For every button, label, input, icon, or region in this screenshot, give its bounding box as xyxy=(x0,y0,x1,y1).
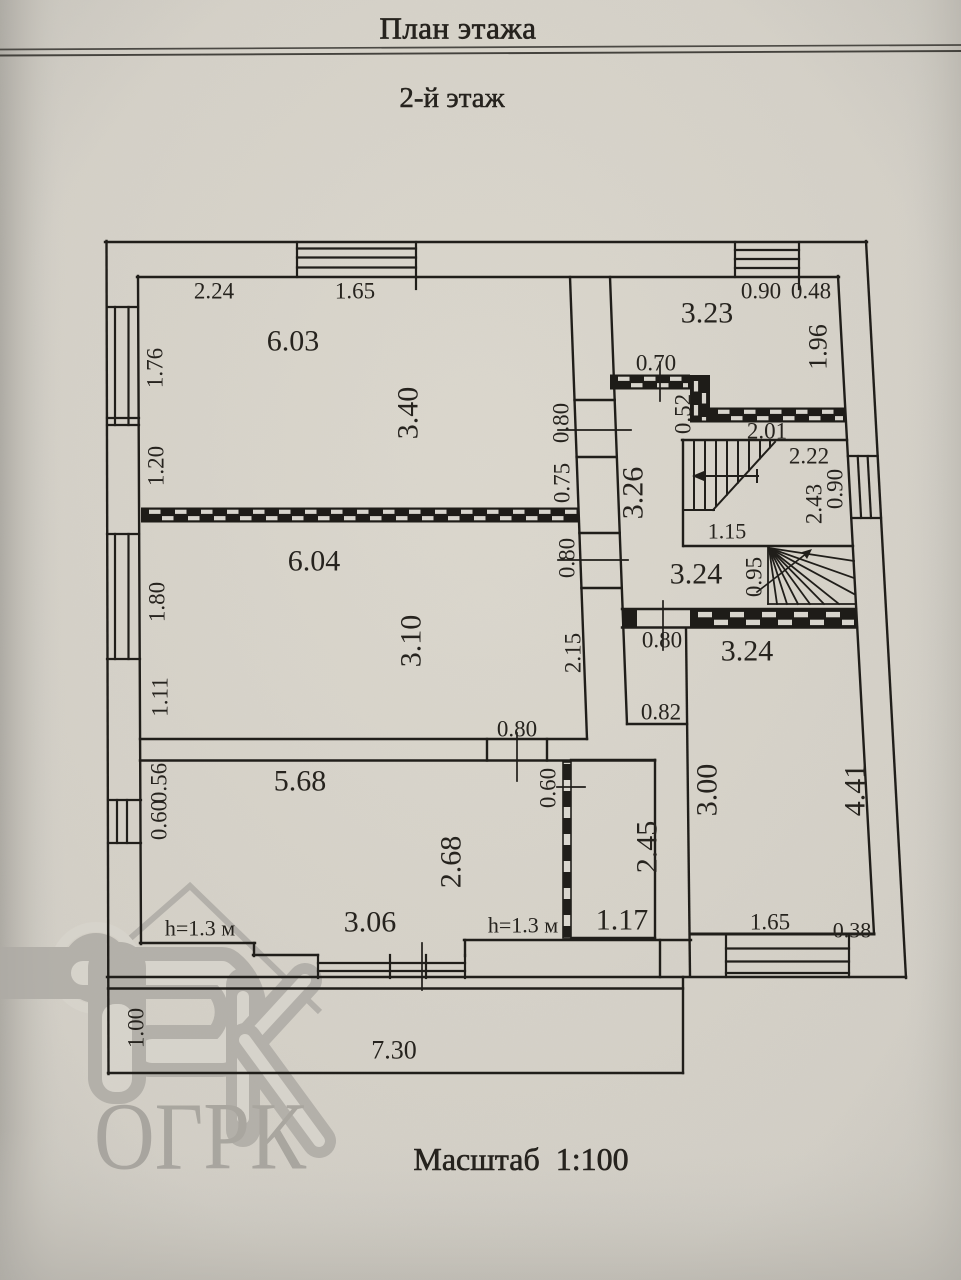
svg-text:0.95: 0.95 xyxy=(742,557,767,597)
svg-text:1.76: 1.76 xyxy=(143,348,168,388)
svg-text:ОГРК: ОГРК xyxy=(94,1083,307,1190)
svg-text:0.48: 0.48 xyxy=(791,279,831,304)
svg-text:6.04: 6.04 xyxy=(288,545,341,578)
svg-text:0.75: 0.75 xyxy=(550,463,575,503)
svg-text:2-й этаж: 2-й этаж xyxy=(399,82,505,114)
svg-text:3.06: 3.06 xyxy=(344,906,397,939)
svg-text:4.41: 4.41 xyxy=(839,764,872,817)
svg-text:2.15: 2.15 xyxy=(561,633,586,673)
svg-text:1.11: 1.11 xyxy=(148,677,173,716)
svg-text:0.82: 0.82 xyxy=(641,700,681,725)
svg-text:1.65: 1.65 xyxy=(750,910,790,935)
svg-text:0.70: 0.70 xyxy=(636,351,676,376)
svg-text:6.03: 6.03 xyxy=(267,325,320,358)
svg-text:3.26: 3.26 xyxy=(617,467,650,520)
svg-text:7.30: 7.30 xyxy=(371,1036,417,1065)
svg-text:3.40: 3.40 xyxy=(392,387,425,440)
svg-text:h=1.3 м: h=1.3 м xyxy=(488,913,558,938)
svg-text:0.80: 0.80 xyxy=(497,717,537,742)
svg-text:1.15: 1.15 xyxy=(708,519,747,544)
svg-text:2.24: 2.24 xyxy=(194,279,235,304)
svg-text:1.17: 1.17 xyxy=(596,904,649,937)
svg-text:2.22: 2.22 xyxy=(789,444,829,469)
svg-text:0.80: 0.80 xyxy=(642,628,682,653)
svg-text:1.65: 1.65 xyxy=(335,279,375,304)
svg-text:0.60: 0.60 xyxy=(536,768,561,808)
svg-text:5.68: 5.68 xyxy=(274,765,327,798)
svg-text:2.45: 2.45 xyxy=(631,821,664,874)
svg-text:0.52: 0.52 xyxy=(671,394,696,434)
svg-text:3.23: 3.23 xyxy=(681,297,734,330)
svg-text:3.24: 3.24 xyxy=(670,558,723,591)
svg-text:h=1.3 м: h=1.3 м xyxy=(165,916,235,941)
svg-text:3.10: 3.10 xyxy=(395,615,428,668)
svg-text:1.96: 1.96 xyxy=(804,324,833,370)
svg-text:1.80: 1.80 xyxy=(145,582,170,622)
svg-text:0.60: 0.60 xyxy=(147,800,172,840)
svg-text:0.38: 0.38 xyxy=(833,918,872,943)
svg-text:1.00: 1.00 xyxy=(124,1008,149,1048)
svg-text:2.01: 2.01 xyxy=(747,419,787,444)
svg-text:3.24: 3.24 xyxy=(721,635,774,668)
svg-text:0.80: 0.80 xyxy=(549,403,574,443)
svg-text:1.20: 1.20 xyxy=(144,446,169,486)
svg-text:0.90: 0.90 xyxy=(823,469,848,509)
svg-text:0.56: 0.56 xyxy=(147,763,172,803)
svg-text:План этажа: План этажа xyxy=(379,11,536,46)
svg-text:0.80: 0.80 xyxy=(555,538,580,578)
svg-text:3.00: 3.00 xyxy=(691,764,724,817)
svg-text:2.68: 2.68 xyxy=(435,836,468,889)
svg-text:Масштаб 1:100: Масштаб 1:100 xyxy=(413,1141,628,1177)
svg-text:0.90: 0.90 xyxy=(741,279,781,304)
